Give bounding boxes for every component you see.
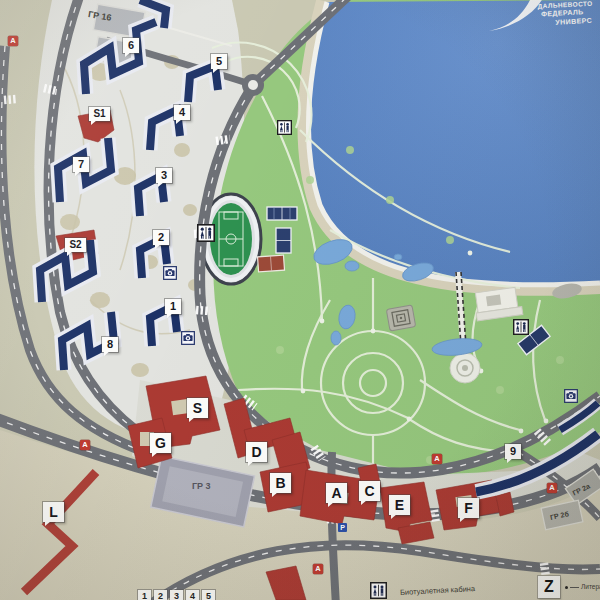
building-marker-f: F xyxy=(458,498,479,518)
building-marker-a: A xyxy=(326,483,347,503)
building-marker-s1: S1 xyxy=(89,107,110,121)
legend-letter-label: Литера у xyxy=(581,583,600,590)
legend-dot xyxy=(565,586,568,589)
dorm-marker-7: 7 xyxy=(73,157,89,172)
dorm-marker-2: 2 xyxy=(153,230,169,245)
dorm-marker-3: 3 xyxy=(156,168,172,183)
parking-icon: P xyxy=(338,523,347,532)
dorm-marker-9: 9 xyxy=(505,444,521,459)
camera-icon xyxy=(182,332,195,345)
map-drawing xyxy=(0,0,600,600)
wc-icon xyxy=(514,320,529,335)
building-marker-s2: S2 xyxy=(65,238,86,252)
building-marker-c: C xyxy=(359,481,380,501)
wc-icon xyxy=(278,121,292,135)
legend-number-2: 2 xyxy=(154,590,167,600)
dorm-marker-6: 6 xyxy=(123,38,139,53)
camera-icon xyxy=(164,267,177,280)
labyrinth xyxy=(386,305,415,331)
building-marker-d: D xyxy=(246,442,267,462)
dorm-marker-8: 8 xyxy=(102,337,118,352)
pavilion xyxy=(473,287,522,321)
legend-number-1: 1 xyxy=(138,590,151,600)
building-marker-s: S xyxy=(187,398,208,418)
fountain xyxy=(450,353,480,383)
university-logo-text: ДАЛЬНЕВОСТО ФЕДЕРАЛЬ УНИВЕРС xyxy=(537,0,600,26)
campus-map: 6 5 4 3 7 2 1 8 9 S1 S2 S G D B A C E F … xyxy=(0,0,600,600)
wc-icon xyxy=(198,225,214,241)
legend-wc-icon xyxy=(370,582,387,599)
bus-stop-icon: A xyxy=(8,36,18,46)
bus-stop-icon: A xyxy=(432,454,442,464)
camera-icon xyxy=(565,390,578,403)
bus-stop-icon: A xyxy=(547,483,557,493)
building-marker-g: G xyxy=(150,433,171,453)
dorm-marker-4: 4 xyxy=(174,105,190,120)
building-marker-e: E xyxy=(389,495,410,515)
dorm-marker-1: 1 xyxy=(165,299,181,314)
legend-number-5: 5 xyxy=(202,590,215,600)
bus-stop-icon: A xyxy=(80,440,90,450)
building-marker-l: L xyxy=(43,502,64,522)
legend-letter-symbol: Z xyxy=(538,576,560,598)
legend-number-3: 3 xyxy=(170,590,183,600)
garage-label-gr3: ГР 3 xyxy=(192,481,211,491)
dorm-marker-5: 5 xyxy=(211,54,227,69)
legend-line xyxy=(570,587,579,588)
legend-number-4: 4 xyxy=(186,590,199,600)
bus-stop-icon: A xyxy=(313,564,323,574)
building-marker-b: B xyxy=(270,473,291,493)
